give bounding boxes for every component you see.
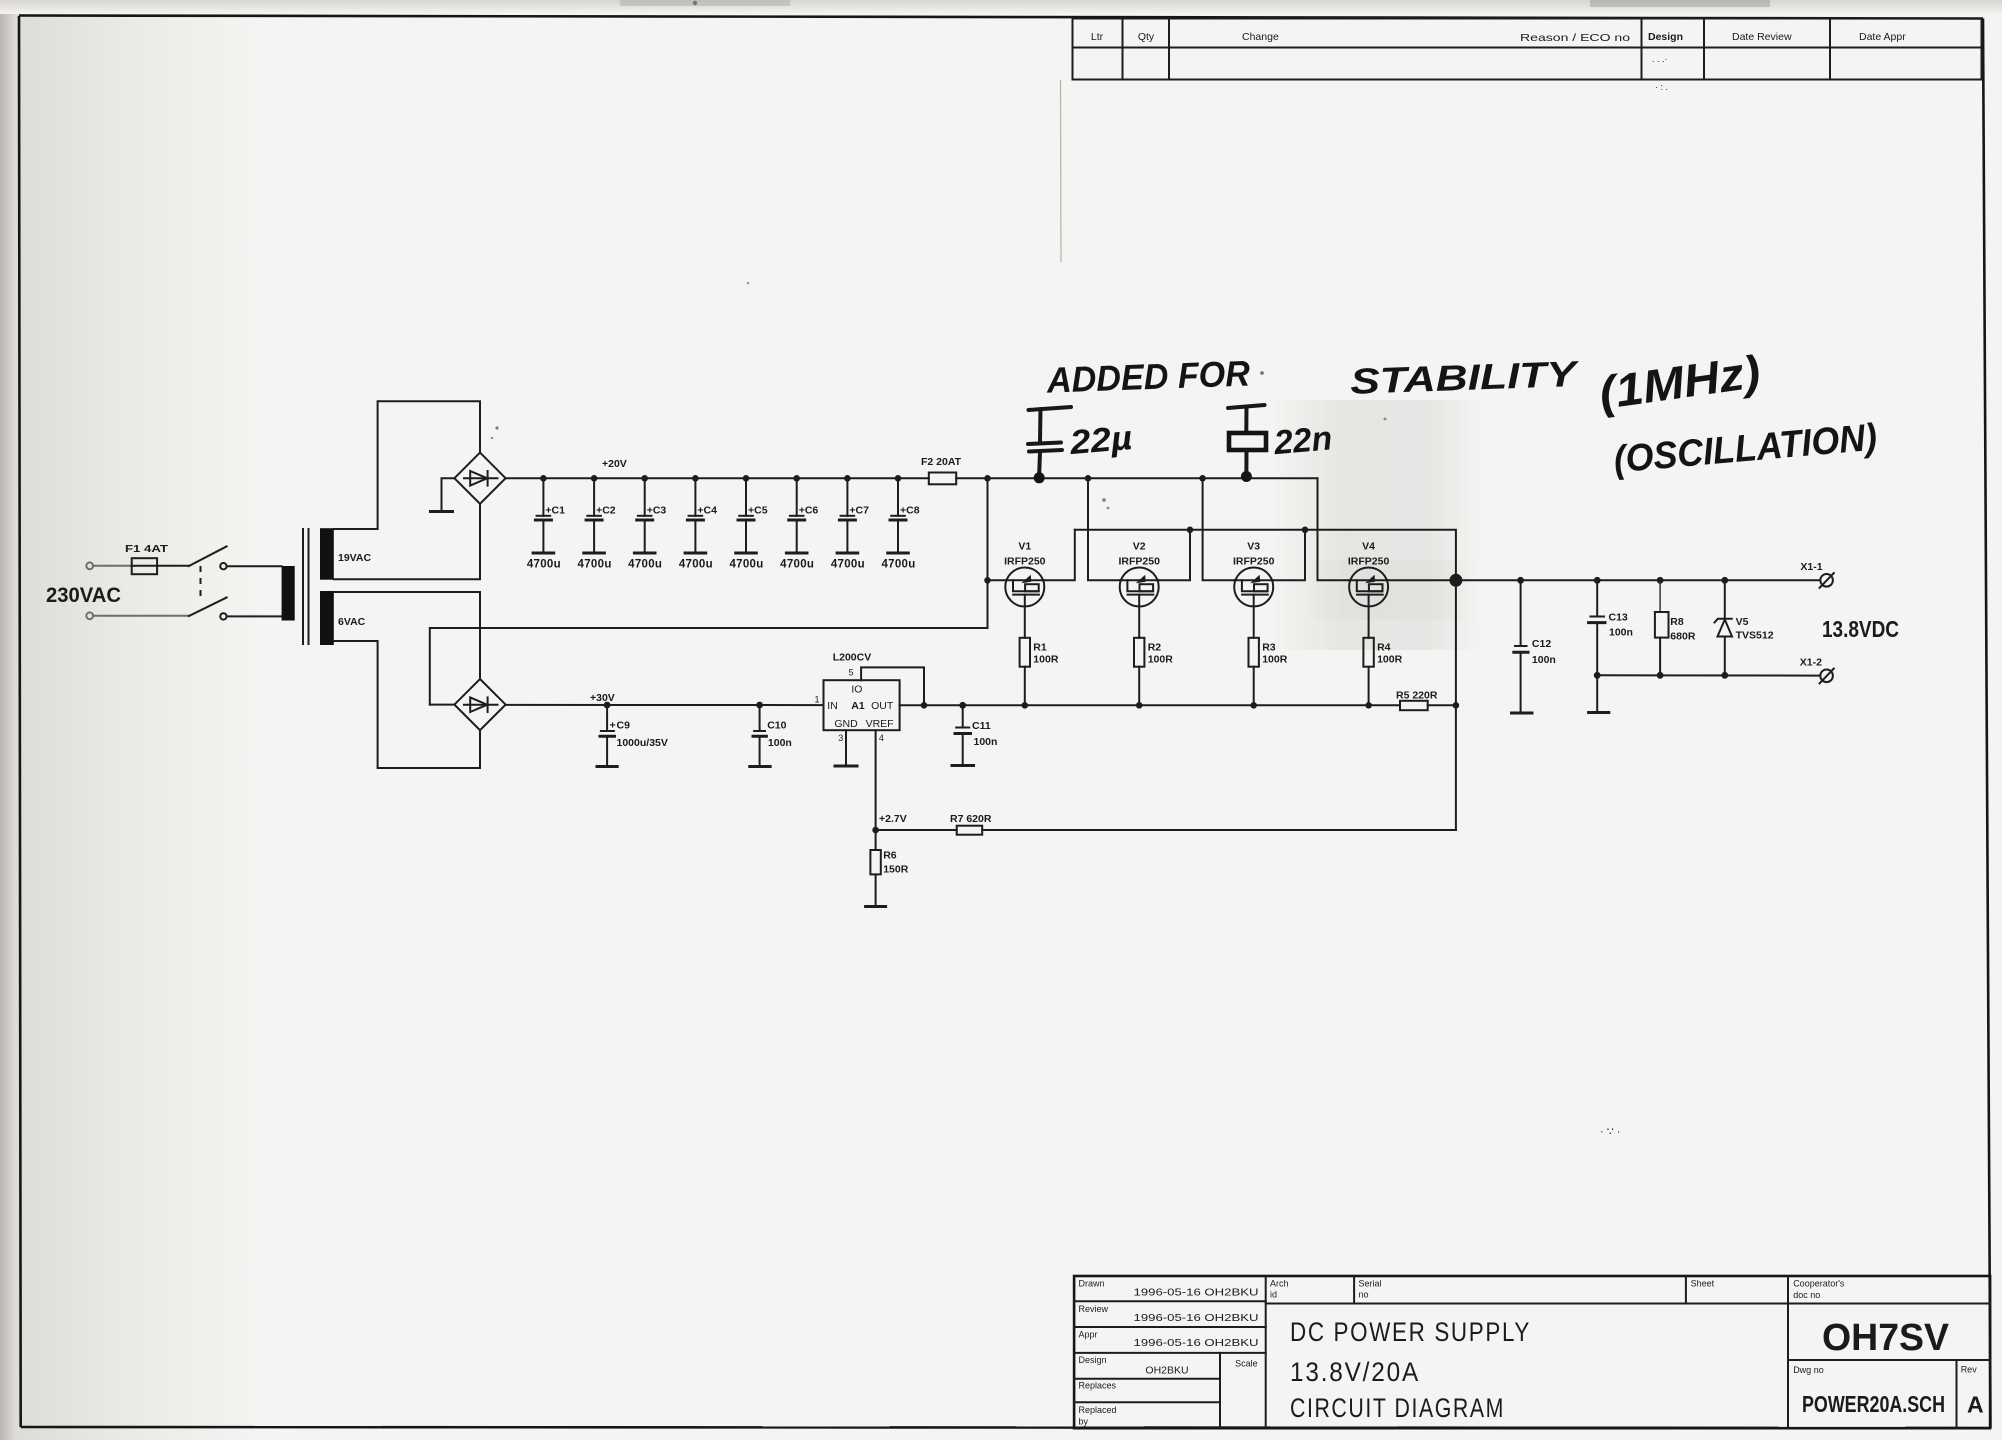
svg-text:(1MHz): (1MHz) <box>1596 345 1764 419</box>
svg-text:(OSCILLATION): (OSCILLATION) <box>1612 417 1879 482</box>
svg-text:X1-2: X1-2 <box>1800 657 1822 669</box>
svg-text:R8: R8 <box>1670 616 1684 628</box>
svg-text:100n: 100n <box>1609 627 1633 639</box>
svg-text:V5: V5 <box>1736 616 1749 628</box>
svg-text:13.8VDC: 13.8VDC <box>1822 616 1899 642</box>
svg-text:ADDED FOR: ADDED FOR <box>1045 353 1250 401</box>
svg-text:X1-1: X1-1 <box>1800 561 1822 573</box>
svg-text:STABILITY: STABILITY <box>1349 353 1580 402</box>
svg-text:C12: C12 <box>1532 638 1551 650</box>
svg-text:TVS512: TVS512 <box>1736 630 1774 642</box>
svg-text:100n: 100n <box>1532 654 1556 666</box>
svg-text:22µ: 22µ <box>1067 419 1133 462</box>
svg-text:22n: 22n <box>1272 419 1334 462</box>
svg-text:680R: 680R <box>1670 631 1696 643</box>
svg-text:C13: C13 <box>1609 612 1628 624</box>
